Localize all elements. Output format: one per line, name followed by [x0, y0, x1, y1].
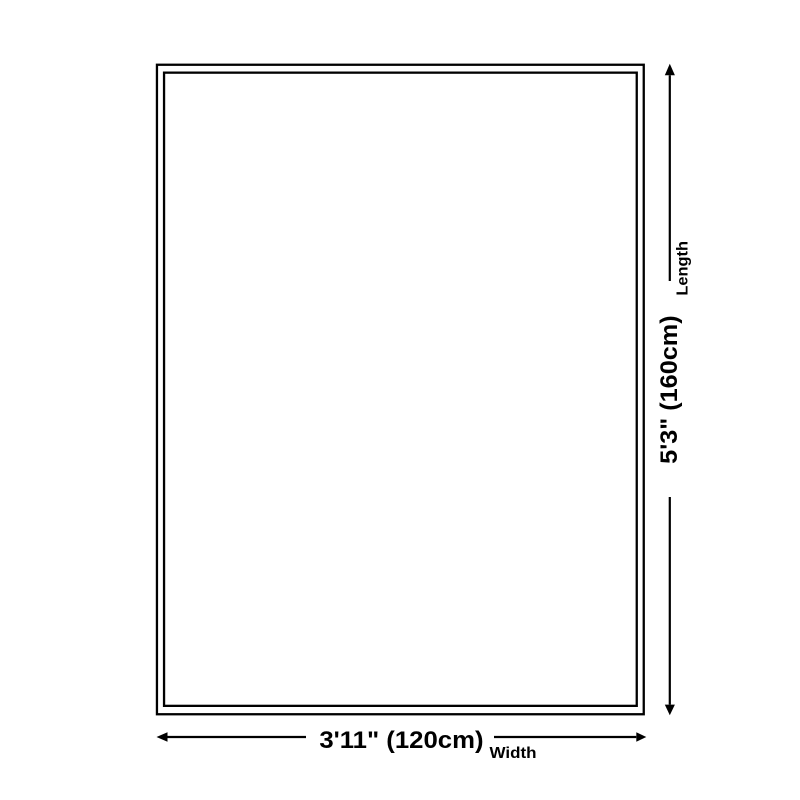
svg-text:3'11" (120cm): 3'11" (120cm) — [319, 727, 483, 754]
svg-text:5'3" (160cm): 5'3" (160cm) — [656, 315, 683, 464]
svg-text:Width: Width — [490, 745, 537, 762]
svg-text:Length: Length — [675, 241, 692, 296]
